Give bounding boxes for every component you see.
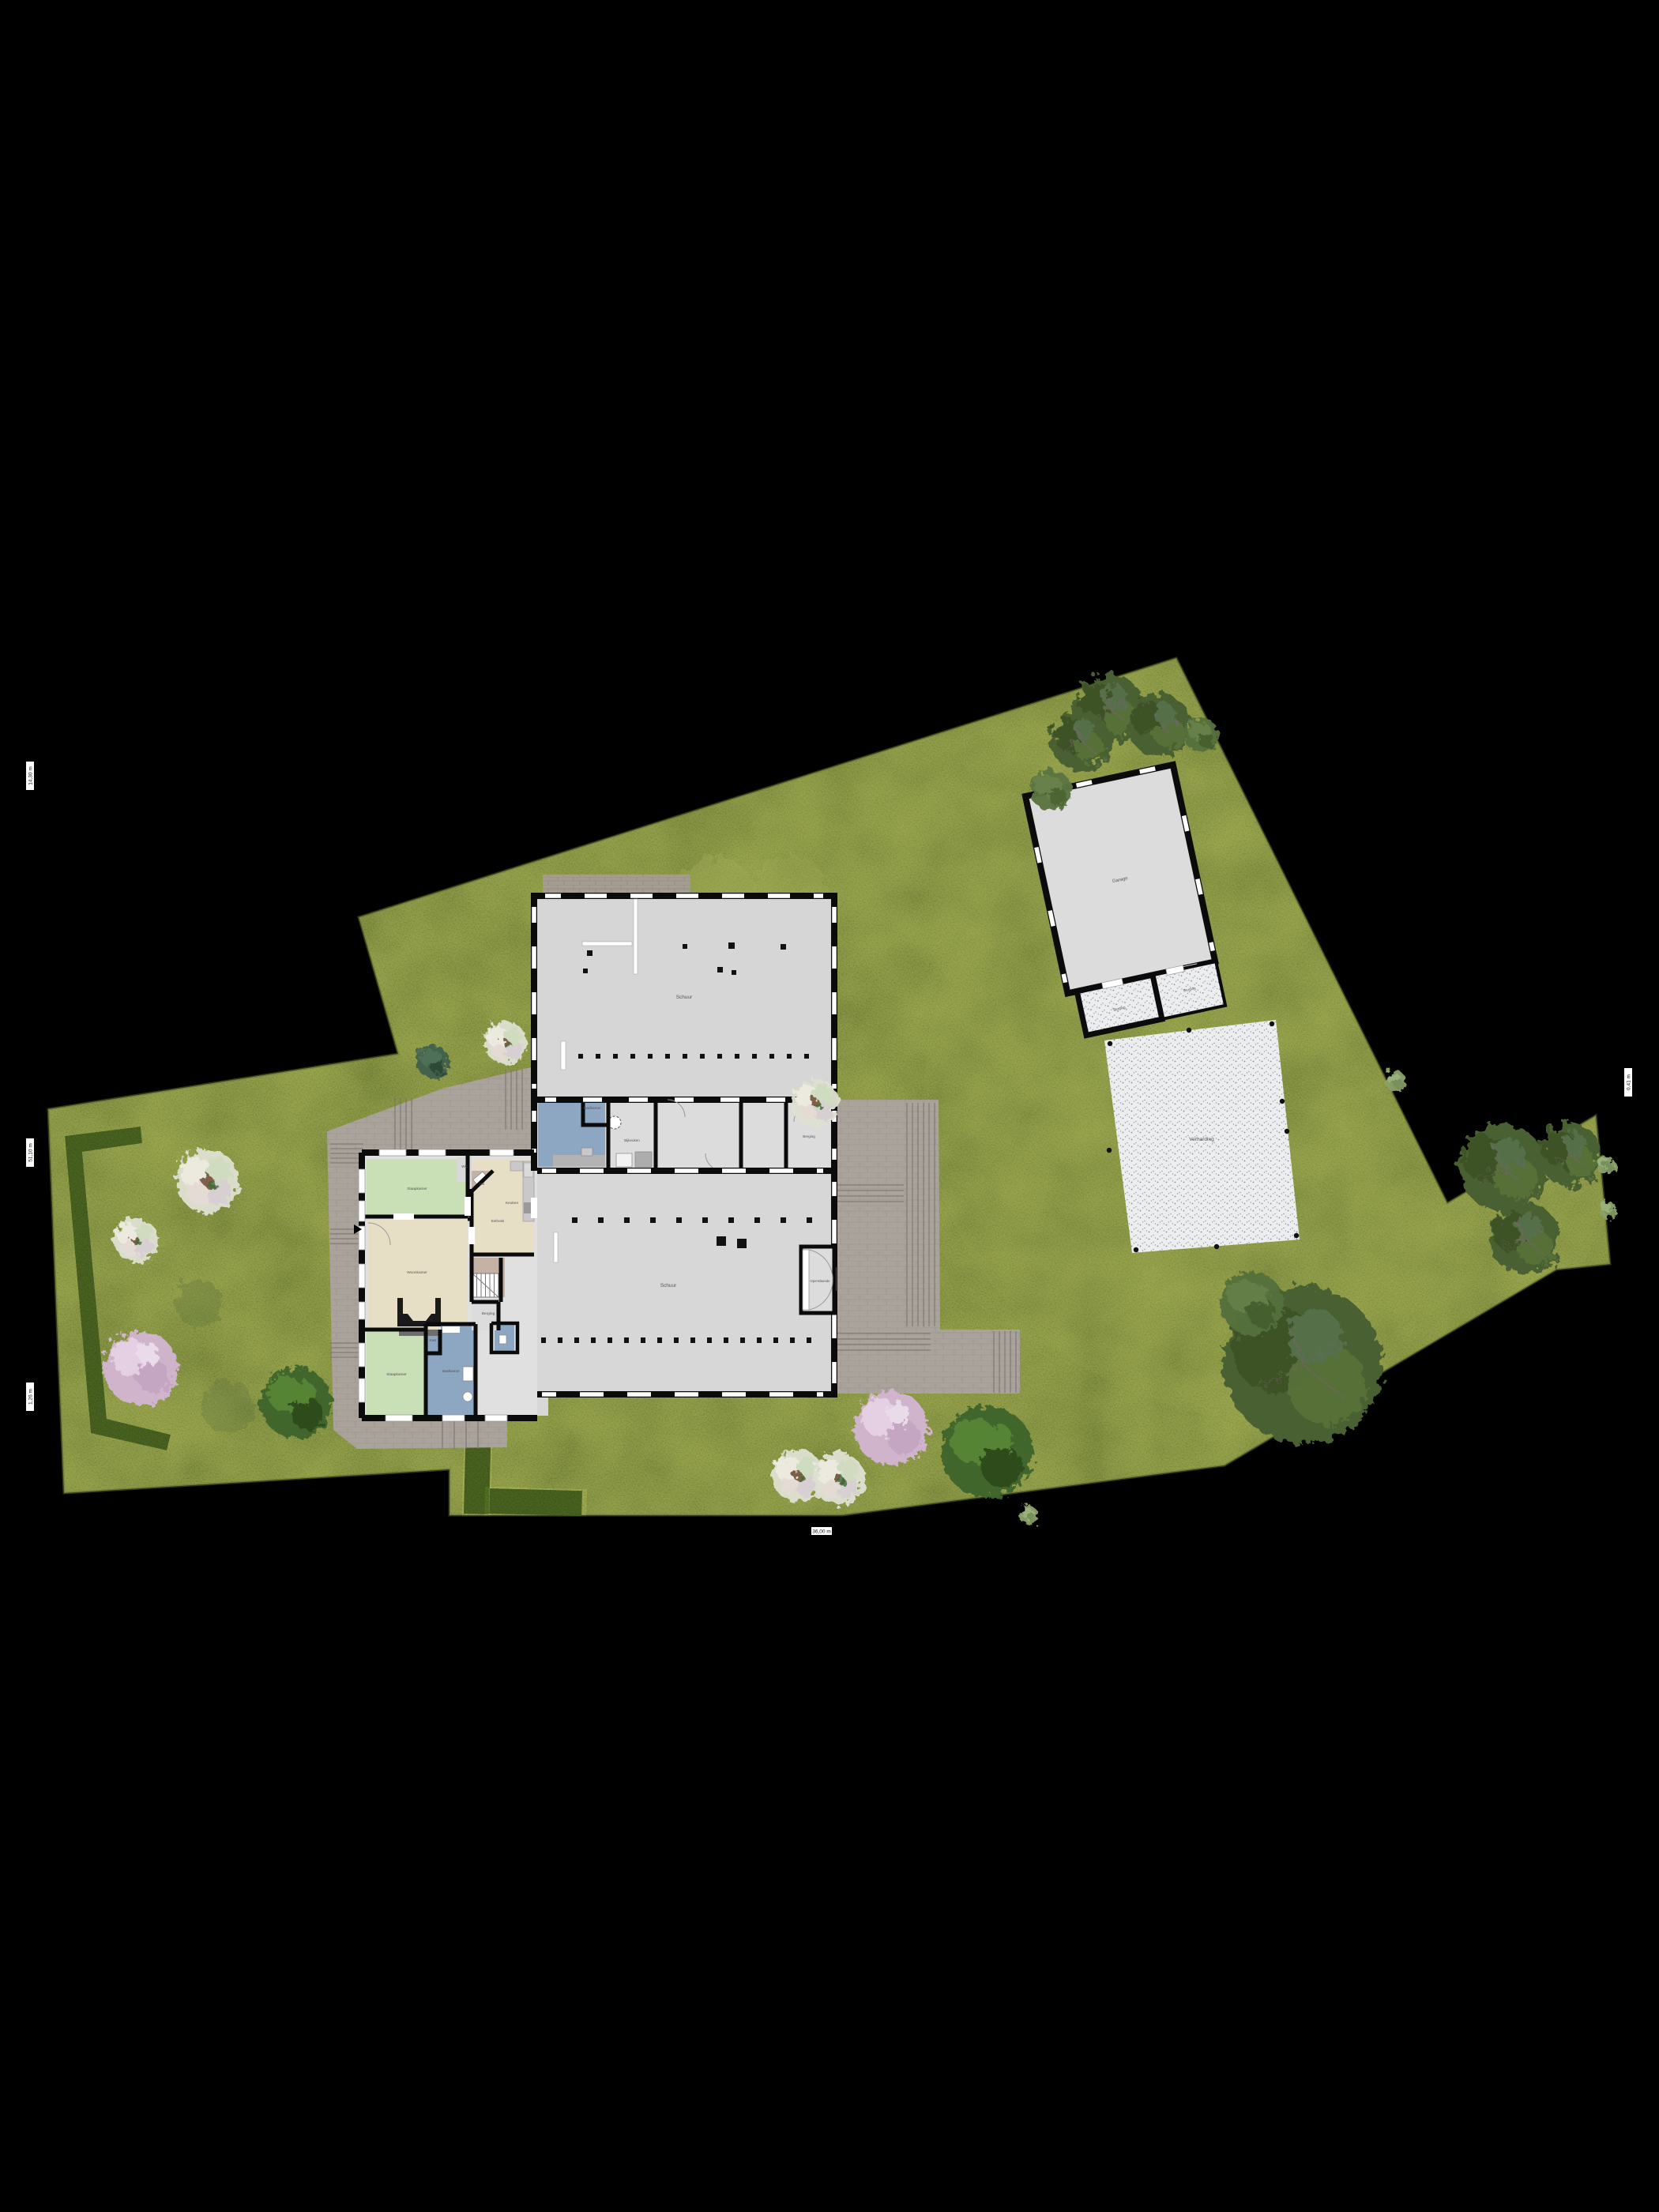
svg-text:Keuken: Keuken: [506, 1201, 519, 1206]
svg-text:Badkamer: Badkamer: [584, 1106, 601, 1111]
svg-text:Verharding: Verharding: [1189, 1137, 1214, 1142]
svg-text:WC: WC: [461, 1164, 468, 1168]
svg-text:Kast: Kast: [429, 1338, 437, 1342]
svg-text:Hal: Hal: [480, 1182, 485, 1186]
svg-text:Bijkeuken: Bijkeuken: [624, 1138, 640, 1142]
svg-text:Woonkamer: Woonkamer: [407, 1270, 427, 1275]
svg-text:Slaapkamer: Slaapkamer: [407, 1187, 427, 1191]
svg-text:51,10 m: 51,10 m: [28, 1143, 34, 1162]
svg-text:Badkamer: Badkamer: [442, 1369, 460, 1374]
svg-text:1,26 m: 1,26 m: [28, 1389, 34, 1405]
svg-text:Berging: Berging: [482, 1311, 495, 1316]
svg-text:0,41 m: 0,41 m: [1627, 1074, 1632, 1090]
svg-text:Openslaande: Openslaande: [811, 1279, 831, 1283]
svg-text:Eethoek: Eethoek: [491, 1219, 505, 1223]
svg-text:Schuur: Schuur: [660, 1283, 677, 1288]
svg-text:Schuur: Schuur: [676, 995, 693, 1000]
svg-text:36,00 m: 36,00 m: [812, 1529, 831, 1535]
svg-text:Slaapkamer: Slaapkamer: [386, 1372, 407, 1377]
svg-text:Berging: Berging: [803, 1134, 815, 1138]
svg-text:14,30 m: 14,30 m: [28, 766, 34, 785]
